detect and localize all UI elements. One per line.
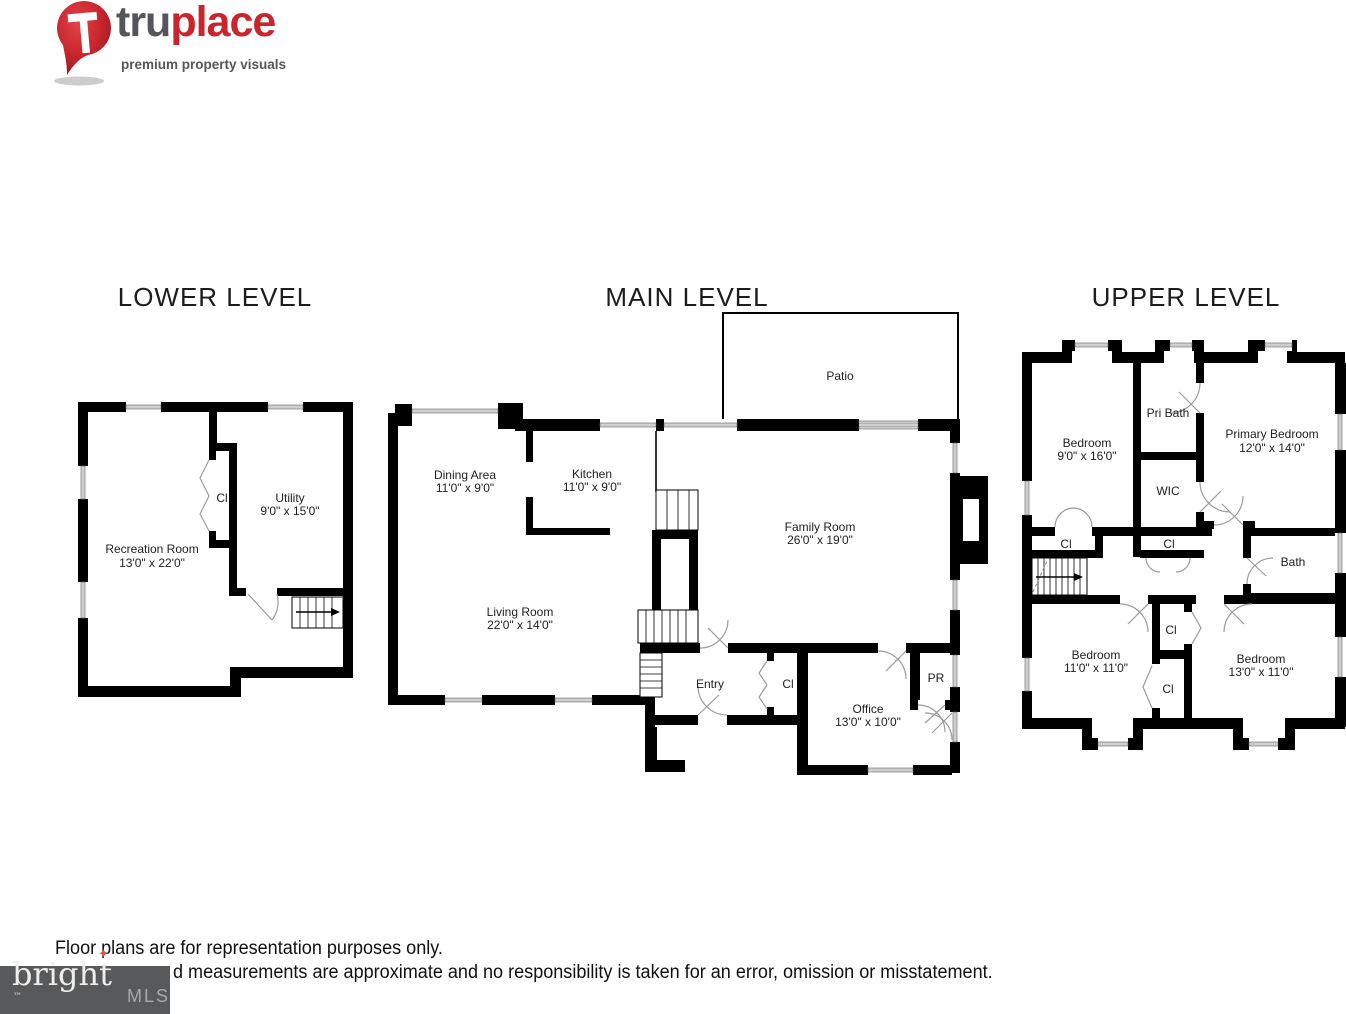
room-label-closet-mid-bottom: Cl	[1162, 682, 1173, 696]
room-label-office: Office	[852, 702, 883, 716]
upper-level-title: UPPER LEVEL	[1092, 282, 1281, 313]
pin-shadow	[54, 77, 104, 86]
room-dims-family: 26'0" x 19'0"	[787, 533, 853, 547]
main-level-plan: Patio Dining Area 11'0" x 9'0" Kitchen 1…	[383, 308, 995, 780]
bright-mls-wordmark: bright✦™	[12, 958, 119, 1014]
bright-mls-logo: bright✦™ MLS	[0, 966, 170, 1014]
room-label-powder-room: PR	[928, 671, 945, 685]
room-label-bath: Bath	[1281, 555, 1306, 569]
room-dims-bedroom-left: 9'0" x 16'0"	[1057, 449, 1116, 463]
bright-last-letter: t✦	[99, 958, 112, 990]
room-label-main-closet: Cl	[782, 677, 793, 691]
room-label-kitchen: Kitchen	[572, 467, 612, 481]
room-label-pri-bath: Pri Bath	[1147, 406, 1190, 420]
room-dims-bedroom-lower-right: 13'0" x 11'0"	[1229, 665, 1294, 679]
room-label-living: Living Room	[487, 605, 554, 619]
room-dims-primary-bedroom: 12'0" x 14'0"	[1239, 441, 1305, 455]
patio-outline	[723, 313, 958, 421]
room-dims-living: 22'0" x 14'0"	[487, 618, 553, 632]
floorplan-page: truplace premium property visuals LOWER …	[0, 0, 1346, 1014]
lower-labels: Recreation Room 13'0" x 22'0" Utility 9'…	[105, 491, 319, 570]
brand-name-part2: place	[170, 0, 275, 46]
upper-stairs	[1032, 558, 1087, 595]
trademark-symbol: ™	[13, 992, 22, 1002]
lower-level-plan: Recreation Room 13'0" x 22'0" Utility 9'…	[68, 392, 360, 700]
room-dims-dining: 11'0" x 9'0"	[436, 481, 494, 495]
room-label-lower-closet: Cl	[216, 491, 227, 505]
bright-text: brigh	[12, 955, 99, 993]
room-label-closet-mid-top: Cl	[1165, 623, 1176, 637]
room-dims-utility: 9'0" x 15'0"	[260, 504, 319, 518]
room-dims-bedroom-lower-left: 11'0" x 11'0"	[1064, 661, 1128, 675]
brand-name-part1: tru	[116, 0, 170, 46]
disclaimer-line2: d measurements are approximate and no re…	[173, 962, 993, 984]
room-label-family: Family Room	[785, 520, 856, 534]
room-label-dining: Dining Area	[434, 468, 496, 482]
room-label-closet-hall-left: Cl	[1060, 537, 1071, 551]
room-dims-recreation: 13'0" x 22'0"	[119, 556, 185, 570]
mls-text: MLS	[127, 986, 170, 1007]
room-label-primary-bedroom: Primary Bedroom	[1225, 427, 1318, 441]
room-label-closet-hall-center: Cl	[1163, 537, 1174, 551]
room-dims-office: 13'0" x 10'0"	[835, 715, 901, 729]
brand-name: truplace	[116, 0, 275, 47]
room-label-bedroom-left: Bedroom	[1063, 436, 1112, 450]
disclaimer-line1: Floor plans are for representation purpo…	[55, 938, 443, 960]
room-label-wic: WIC	[1156, 484, 1180, 498]
room-label-recreation: Recreation Room	[105, 542, 198, 556]
room-dims-kitchen: 11'0" x 9'0"	[563, 480, 621, 494]
upper-level-plan: Bedroom 9'0" x 16'0" Pri Bath Primary Be…	[1015, 333, 1346, 757]
star-icon: ✦	[98, 948, 109, 961]
lower-stairs	[292, 597, 343, 628]
brand-tagline: premium property visuals	[121, 57, 286, 72]
room-label-bedroom-lower-left: Bedroom	[1072, 648, 1121, 662]
truplace-pin-icon	[50, 0, 116, 88]
room-label-bedroom-lower-right: Bedroom	[1237, 652, 1286, 666]
room-label-entry: Entry	[696, 677, 724, 691]
lower-level-title: LOWER LEVEL	[118, 282, 313, 313]
room-label-patio: Patio	[826, 369, 854, 383]
room-label-utility: Utility	[275, 491, 304, 505]
